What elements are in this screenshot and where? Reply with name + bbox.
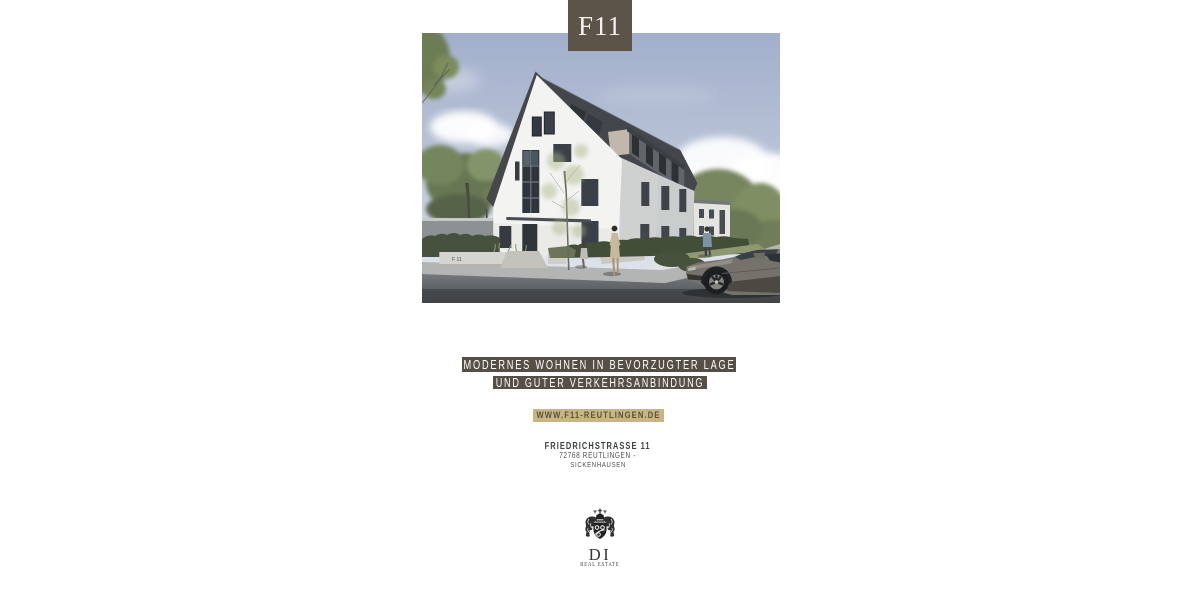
svg-text:F 11: F 11 (452, 257, 462, 263)
